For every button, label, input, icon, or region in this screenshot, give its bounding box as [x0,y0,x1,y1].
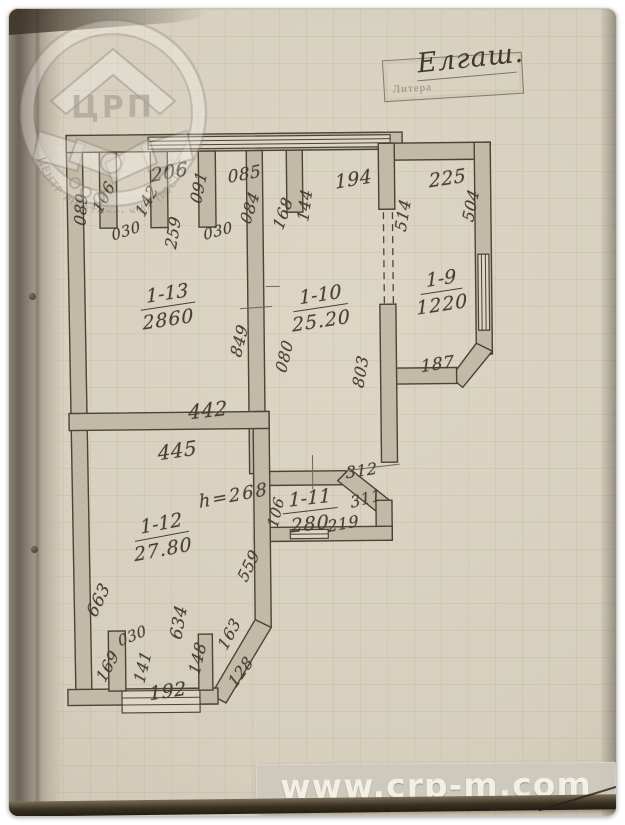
room-label-1-13: 1-132860 [140,279,196,335]
logo-acronym: ЦРП [71,90,155,125]
room-label-1-10: 1-1025.20 [290,281,351,338]
photographed-document: 2060850911421060890302590300841681441942… [0,0,625,825]
room-label-1-11: 1-11280 [283,485,338,539]
room-area: 280 [291,509,330,538]
room-label-1-9: 1-91220 [415,265,469,321]
agency-watermark-logo: ЦРП ЦЕНТР РІЕЛТОРСЬКИХ ПОСЛУГ [13,13,213,213]
dimension-label: 442 [188,396,228,425]
litera-label: Литера [392,81,432,95]
photo-frame: 2060850911421060890302590300841681441942… [8,8,617,817]
